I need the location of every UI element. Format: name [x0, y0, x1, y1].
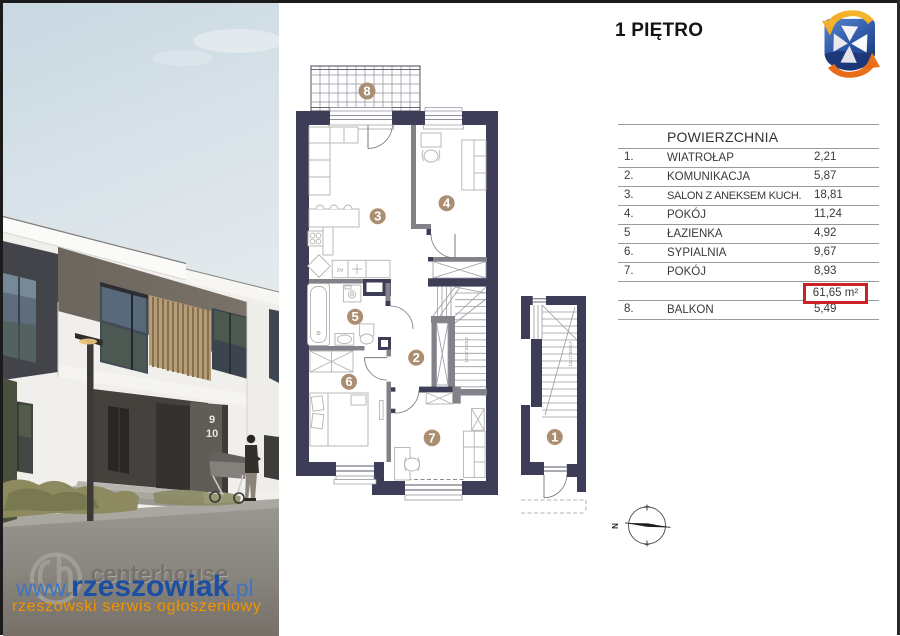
svg-text:13x17,9x26,2: 13x17,9x26,2 [568, 341, 573, 367]
svg-text:N: N [612, 523, 620, 529]
svg-text:4: 4 [443, 196, 451, 211]
svg-text:3: 3 [374, 209, 381, 224]
svg-text:2: 2 [413, 350, 420, 365]
svg-text:6: 6 [345, 374, 352, 389]
svg-text:5: 5 [351, 309, 358, 324]
svg-text:10: 10 [206, 428, 218, 440]
svg-text:9: 9 [209, 414, 215, 426]
svg-text:ZM: ZM [337, 268, 344, 273]
svg-text:7: 7 [428, 430, 435, 445]
svg-text:8: 8 [363, 84, 370, 99]
svg-text:17x17,9x26,2: 17x17,9x26,2 [464, 337, 469, 363]
svg-text:1: 1 [551, 430, 558, 445]
